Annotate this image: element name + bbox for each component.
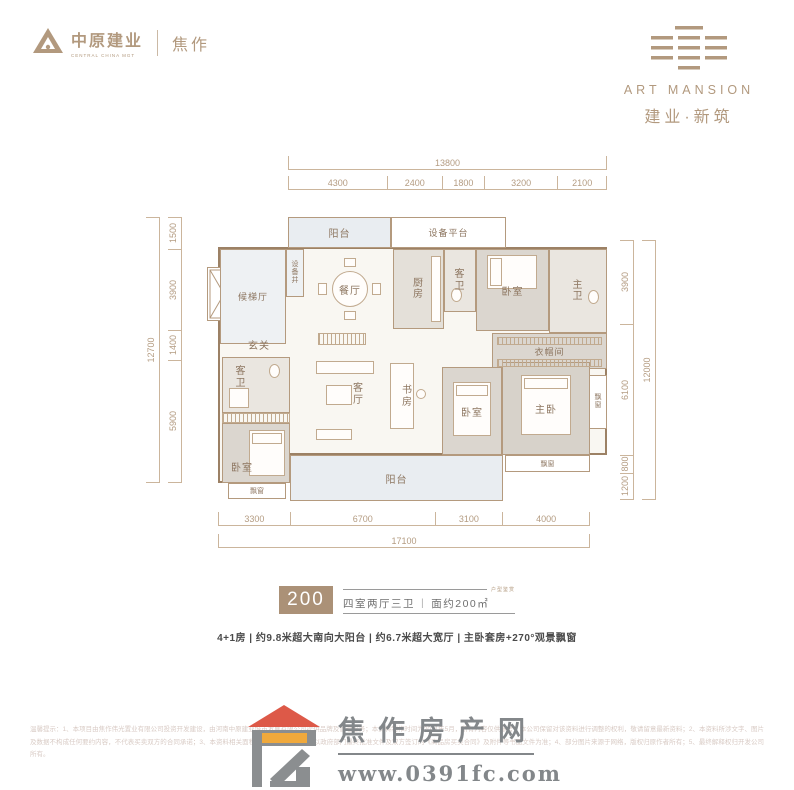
dining-chair bbox=[372, 283, 381, 295]
unit-number-badge: 200 bbox=[279, 586, 333, 614]
dining-table: 餐厅 bbox=[332, 271, 368, 307]
room-label-kitchen: 厨房 bbox=[413, 278, 425, 301]
bay-window-bottom-label: 飘窗 bbox=[541, 459, 555, 469]
bay-window-left: 飘窗 bbox=[228, 483, 286, 499]
room-label-balcony-bottom: 阳台 bbox=[386, 471, 408, 486]
bay-window-right: 飘窗 bbox=[589, 375, 607, 429]
toilet bbox=[588, 290, 599, 304]
dim-bottom-segs: 3300670031004000 bbox=[218, 512, 590, 526]
unit-title-block: 200 户型鉴赏 四室两厅三卫 | 面约200㎡ bbox=[279, 586, 515, 614]
developer-logo: 中原建业 CENTRAL CHINA MGT 焦作 bbox=[33, 27, 210, 58]
shoe-cabinet bbox=[318, 333, 366, 345]
room-label-equipment-shaft: 设备井 bbox=[291, 261, 300, 285]
room-label-study: 书房 bbox=[402, 385, 414, 408]
room-label-closet: 衣帽间 bbox=[534, 345, 564, 358]
room-label-dining: 餐厅 bbox=[339, 282, 361, 297]
site-url: www.0391fc.com bbox=[338, 761, 548, 786]
room-label-guest-bath-top: 客卫 bbox=[454, 269, 466, 292]
kitchen-counter bbox=[431, 256, 441, 322]
dining-chair bbox=[344, 311, 356, 320]
bay-window-right-label: 飘窗 bbox=[594, 394, 603, 410]
unit-area-text: 面约200㎡ bbox=[431, 596, 489, 611]
room-equipment-platform: 设备平台 bbox=[391, 217, 506, 248]
dim-left-total: 12700 bbox=[146, 217, 160, 483]
dining-chair bbox=[344, 258, 356, 267]
room-equipment-shaft: 设备井 bbox=[286, 249, 304, 297]
room-master-bath: 主卫 bbox=[549, 249, 607, 333]
layout-area-separator: | bbox=[421, 597, 425, 609]
project-name-chinese: 建业·新筑 bbox=[614, 103, 764, 127]
room-guest-bath-left: 客卫 bbox=[222, 357, 290, 413]
site-name: 焦作房产网 bbox=[338, 709, 548, 748]
room-label-master-bedroom: 主卧 bbox=[535, 401, 557, 416]
bay-window-bottom: 飘窗 bbox=[505, 455, 590, 472]
title-corner-text: 户型鉴赏 bbox=[491, 586, 515, 593]
dim-bottom-total: 17100 bbox=[218, 534, 590, 548]
room-label-balcony-top: 阳台 bbox=[329, 225, 351, 240]
room-label-foyer: 玄关 bbox=[248, 337, 270, 352]
room-bedroom-top: 卧室 bbox=[476, 249, 549, 331]
room-kitchen: 厨房 bbox=[393, 249, 444, 329]
room-master-bedroom: 主卧 bbox=[502, 362, 590, 455]
room-balcony-top: 阳台 bbox=[288, 217, 391, 248]
tv-cabinet bbox=[316, 429, 352, 440]
wardrobe bbox=[497, 359, 602, 367]
room-closet: 衣帽间 bbox=[492, 333, 607, 369]
toilet bbox=[269, 364, 280, 378]
sofa bbox=[316, 361, 374, 374]
floorplan: 阳台 设备平台 候梯厅 设备井 餐厅 bbox=[218, 217, 608, 502]
title-rule-bottom bbox=[343, 613, 515, 614]
room-dining: 餐厅 bbox=[306, 249, 390, 333]
room-elevator-hall: 候梯厅 bbox=[220, 249, 286, 344]
room-label-living: 客厅 bbox=[353, 383, 365, 406]
room-guest-bath-top: 客卫 bbox=[444, 249, 476, 312]
room-label-bedroom-left: 卧室 bbox=[231, 459, 253, 474]
wardrobe bbox=[222, 413, 290, 423]
developer-brand-name: 中原建业 bbox=[71, 27, 143, 51]
room-label-equipment-platform: 设备平台 bbox=[428, 226, 468, 239]
developer-brand-english: CENTRAL CHINA MGT bbox=[71, 53, 143, 58]
coffee-table bbox=[326, 385, 352, 405]
unit-selling-points: 4+1房 | 约9.8米超大南向大阳台 | 约6.7米超大宽厅 | 主卧套房+2… bbox=[0, 629, 794, 644]
site-logo-block: 焦作房产网 www.0391fc.com bbox=[246, 703, 548, 790]
room-label-elevator-hall: 候梯厅 bbox=[238, 290, 268, 303]
study-chair bbox=[416, 389, 426, 399]
header-divider bbox=[157, 30, 158, 56]
room-bedroom-center: 卧室 bbox=[442, 367, 502, 455]
central-china-triangle-icon bbox=[33, 28, 63, 58]
site-name-underline bbox=[338, 753, 534, 755]
dim-left-segs: 1500390014005900 bbox=[168, 217, 182, 483]
room-label-guest-bath-left: 客卫 bbox=[235, 366, 247, 389]
project-name-english: ART MANSION bbox=[614, 83, 764, 97]
shower bbox=[229, 388, 249, 408]
poster-page: 中原建业 CENTRAL CHINA MGT 焦作 ART MANSION 建业… bbox=[0, 0, 794, 790]
room-label-bedroom-center: 卧室 bbox=[461, 404, 483, 419]
dim-right-segs: 390061008001200 bbox=[620, 240, 634, 500]
room-balcony-bottom: 阳台 bbox=[290, 455, 503, 501]
room-label-bedroom-top: 卧室 bbox=[502, 283, 524, 298]
dim-top-segs: 43002400180032002100 bbox=[288, 176, 607, 190]
art-mansion-building-icon bbox=[647, 59, 731, 76]
dining-chair bbox=[318, 283, 327, 295]
house-logo-icon bbox=[246, 703, 322, 790]
room-bedroom-left: 卧室 bbox=[222, 423, 290, 483]
project-logo: ART MANSION 建业·新筑 bbox=[614, 26, 764, 127]
title-rule-top bbox=[343, 589, 487, 590]
bay-window-left-label: 飘窗 bbox=[250, 486, 264, 496]
room-label-master-bath: 主卫 bbox=[572, 280, 584, 303]
dim-top-total: 13800 bbox=[288, 156, 607, 170]
bed bbox=[249, 430, 285, 476]
dim-right-total: 12000 bbox=[642, 240, 656, 500]
unit-layout-text: 四室两厅三卫 bbox=[343, 596, 415, 611]
city-name: 焦作 bbox=[172, 31, 210, 55]
